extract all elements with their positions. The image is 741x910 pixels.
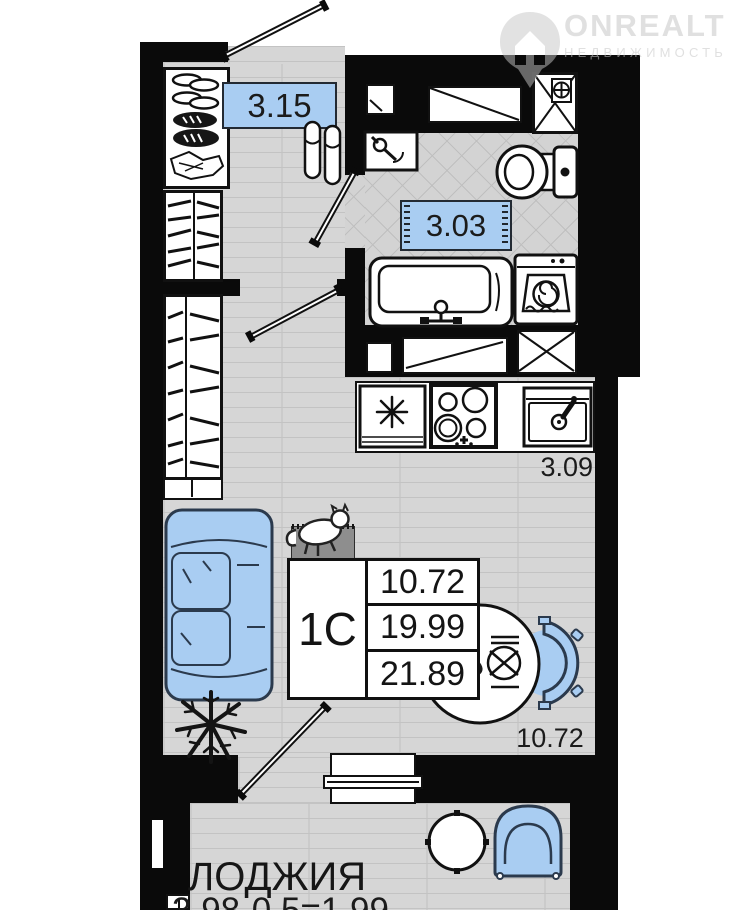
wall-balcony-right bbox=[415, 755, 595, 803]
wardrobe-upper bbox=[163, 190, 223, 282]
slippers bbox=[302, 118, 344, 190]
bath-mat: 3.03 bbox=[400, 200, 512, 251]
vent-shaft-long bbox=[428, 86, 522, 123]
loggia-formula: 3.98·0.5=1.99 bbox=[172, 891, 502, 910]
bathroom-area-label: 3.03 bbox=[426, 208, 486, 244]
area-row-2: 19.99 bbox=[368, 606, 477, 651]
entry-threshold bbox=[228, 46, 345, 64]
loggia-window-glazing bbox=[323, 775, 423, 789]
wall-right bbox=[595, 377, 618, 805]
shaft-small-2 bbox=[366, 342, 393, 373]
watermark-brand: ONREALT bbox=[564, 7, 727, 44]
wardrobe-lower bbox=[163, 294, 223, 480]
plant bbox=[167, 686, 255, 766]
floor-plan: 3.03 bbox=[0, 0, 741, 910]
corner-sink bbox=[363, 130, 419, 172]
loggia-armchair bbox=[487, 800, 569, 880]
unit-type-label: 1C bbox=[290, 561, 368, 697]
area-row-3: 21.89 bbox=[368, 652, 477, 697]
toilet bbox=[494, 142, 580, 202]
vent-shaft-long-2 bbox=[402, 337, 508, 374]
bathtub bbox=[368, 255, 514, 329]
wall-loggia-right bbox=[570, 800, 618, 910]
shaft-small-fold bbox=[366, 84, 395, 115]
area-row-1: 10.72 bbox=[368, 561, 477, 606]
loggia-side-table bbox=[424, 809, 490, 875]
living-area-label: 10.72 bbox=[508, 723, 592, 753]
vent-fan-unit bbox=[532, 72, 578, 134]
fridge bbox=[358, 384, 427, 449]
shoe-rack bbox=[163, 67, 230, 189]
snowflake-icon bbox=[377, 397, 407, 427]
kitchen-sink bbox=[522, 386, 593, 448]
sofa bbox=[163, 507, 275, 703]
washing-machine bbox=[513, 253, 579, 326]
loggia-wall-slot bbox=[152, 820, 163, 868]
unit-info-card: 1C 10.72 19.99 21.89 bbox=[287, 558, 480, 700]
wall-left bbox=[140, 55, 163, 910]
vent-shaft-x bbox=[517, 330, 577, 374]
kitchen-area-label: 3.09 bbox=[523, 452, 593, 482]
stove bbox=[429, 383, 498, 449]
cat bbox=[282, 502, 354, 560]
wardrobe-base-boxes bbox=[163, 478, 223, 500]
